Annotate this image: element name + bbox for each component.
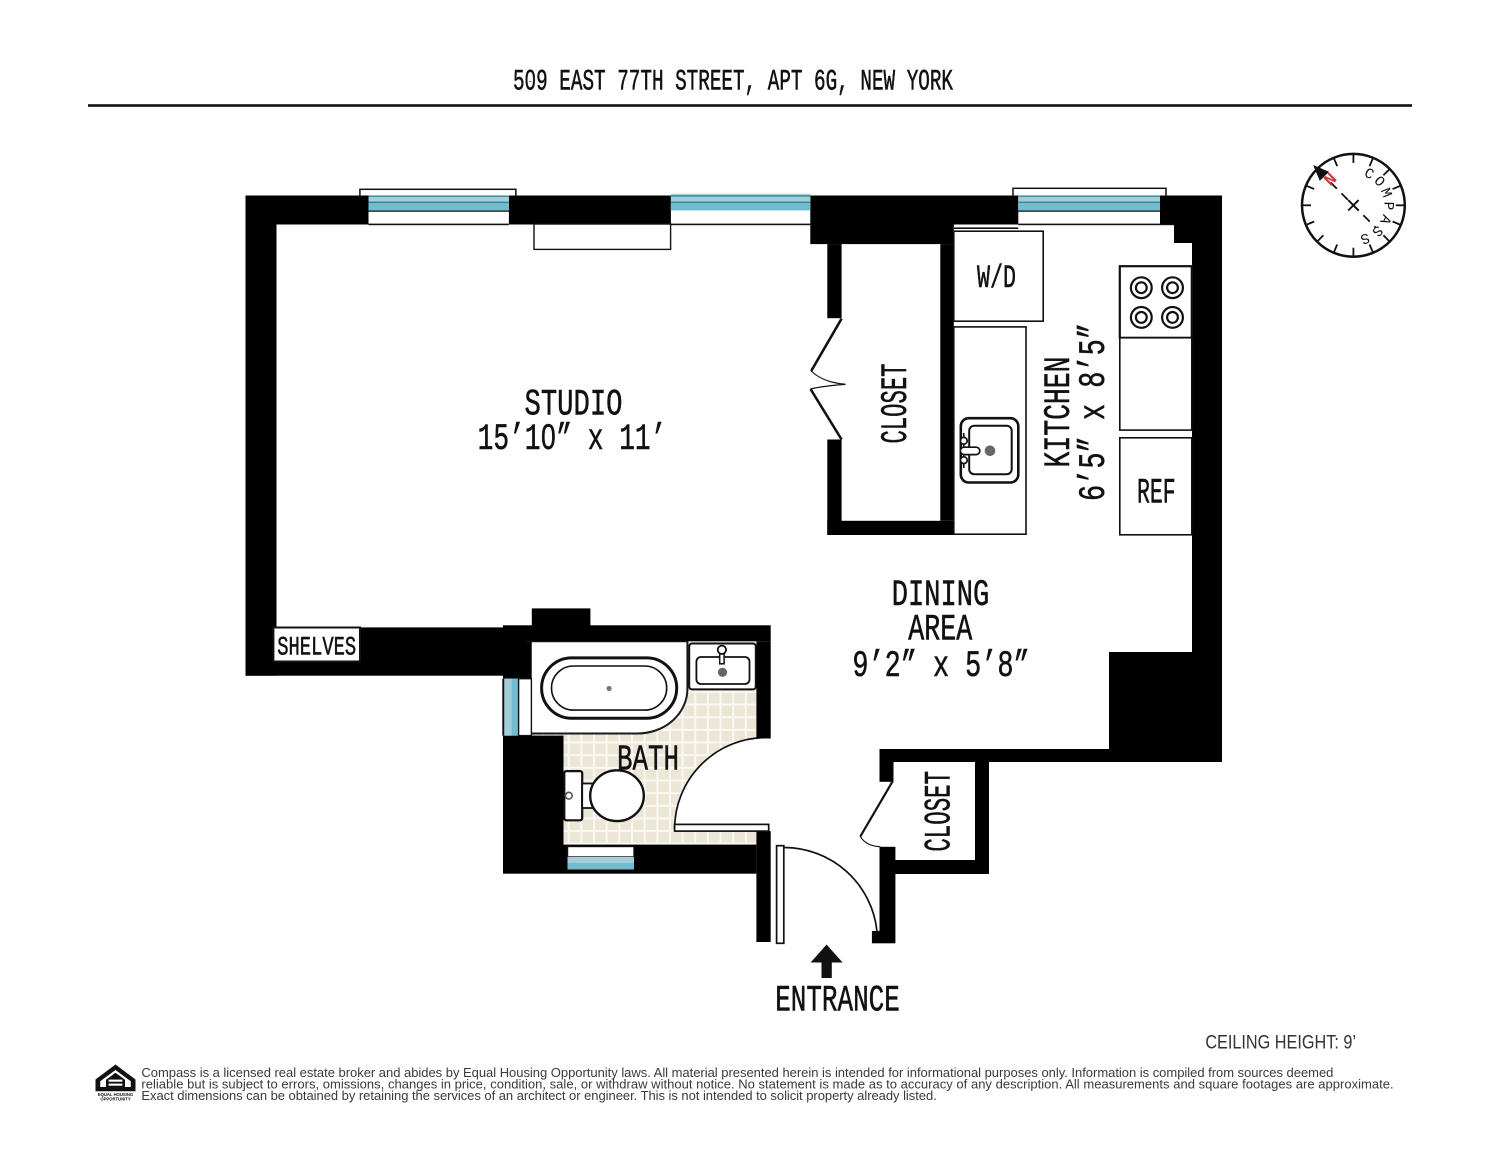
- svg-text:W/D: W/D: [977, 261, 1016, 297]
- svg-text:CLOSET: CLOSET: [876, 364, 918, 444]
- svg-text:Exact dimensions can be obtain: Exact dimensions can be obtained by reta…: [141, 1088, 936, 1103]
- svg-text:CEILING HEIGHT: 9’: CEILING HEIGHT: 9’: [1205, 1031, 1356, 1053]
- svg-text:15’10” x 11’: 15’10” x 11’: [478, 418, 667, 461]
- svg-text:6’5” x 8’5”: 6’5” x 8’5”: [1073, 323, 1115, 501]
- svg-text:REF: REF: [1137, 474, 1176, 514]
- svg-text:BATH: BATH: [617, 741, 679, 781]
- svg-text:P: P: [1379, 201, 1395, 210]
- svg-text:9’2” x 5’8”: 9’2” x 5’8”: [852, 645, 1029, 687]
- svg-text:ENTRANCE: ENTRANCE: [775, 979, 900, 1022]
- svg-text:SHELVES: SHELVES: [277, 633, 356, 663]
- svg-text:OPPORTUNITY: OPPORTUNITY: [100, 1097, 130, 1102]
- svg-text:CLOSET: CLOSET: [919, 771, 961, 852]
- svg-text:509 EAST 77TH STREET, APT 6G,: 509 EAST 77TH STREET, APT 6G, NEW YORK: [513, 66, 953, 99]
